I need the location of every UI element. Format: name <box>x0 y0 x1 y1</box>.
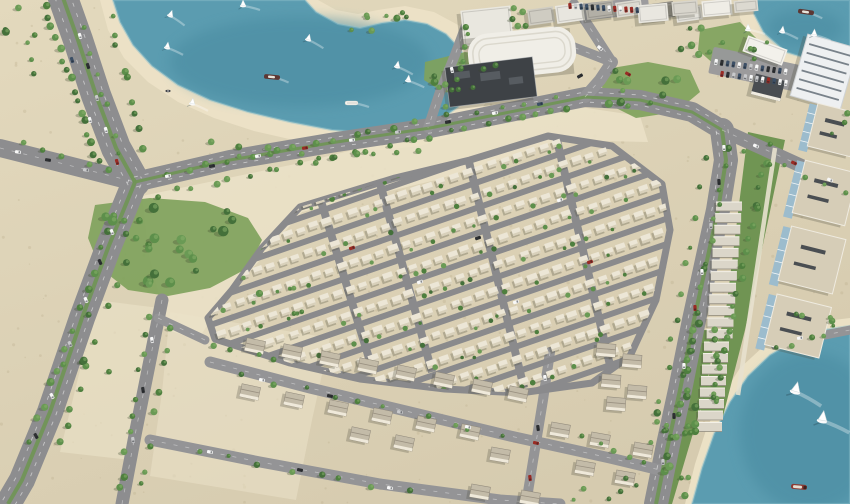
tree-highlight <box>132 100 135 103</box>
tree-highlight <box>802 313 805 316</box>
tree-highlight <box>125 69 128 72</box>
car-windshield <box>569 6 571 8</box>
tree-highlight <box>150 444 153 447</box>
tree-highlight <box>94 271 97 274</box>
car-windshield <box>723 149 725 151</box>
sand-speckle <box>715 109 718 112</box>
tree-highlight <box>713 217 715 219</box>
sand-speckle <box>518 274 521 277</box>
villa-tree-icon <box>306 283 311 288</box>
tree-highlight <box>107 102 109 104</box>
tree-highlight <box>158 390 161 393</box>
tree-highlight <box>666 453 669 456</box>
tree-highlight <box>42 148 44 150</box>
sand-speckle <box>663 346 666 349</box>
tree-highlight <box>93 152 96 155</box>
villa-tree-icon <box>514 159 519 164</box>
tree-highlight <box>68 423 71 426</box>
tree-highlight <box>273 382 276 385</box>
tree-highlight <box>464 126 467 129</box>
car <box>682 363 685 369</box>
tree-highlight <box>776 346 778 348</box>
villa-tree-icon <box>584 236 589 241</box>
tree-highlight <box>189 168 192 171</box>
tree-highlight <box>108 167 111 170</box>
tree-highlight <box>752 223 755 226</box>
villa-tree-icon <box>258 324 263 329</box>
villa-tree-icon <box>624 198 628 202</box>
tree-highlight <box>608 101 612 105</box>
tree-highlight <box>277 148 280 151</box>
tree-highlight <box>294 312 296 314</box>
tree-highlight <box>620 489 622 491</box>
villa-tree-icon <box>478 349 482 353</box>
sand-speckle <box>633 154 635 156</box>
villa-tree-icon <box>474 327 478 331</box>
tree-highlight <box>513 6 516 9</box>
sand-speckle <box>362 203 364 205</box>
tree-highlight <box>698 320 702 324</box>
tree-highlight <box>410 488 413 491</box>
stern <box>803 486 806 489</box>
villa-tree-icon <box>458 306 463 311</box>
car-windshield <box>662 463 664 465</box>
villa-tree-icon <box>494 215 499 220</box>
tree-highlight <box>46 3 49 6</box>
sand-speckle <box>316 319 319 322</box>
tree-highlight <box>695 421 699 425</box>
villa-tree-icon <box>377 334 382 339</box>
tree-highlight <box>393 126 396 129</box>
villa-tree-icon <box>357 313 361 317</box>
tree-highlight <box>84 26 86 28</box>
villa-tree-icon <box>574 192 579 197</box>
tree-highlight <box>716 353 719 356</box>
tree-highlight <box>770 142 772 144</box>
villa-tree-icon <box>589 209 594 214</box>
sand-speckle <box>31 25 33 27</box>
villa-tree-icon <box>479 250 483 254</box>
sand-speckle <box>29 263 30 264</box>
tree-highlight <box>670 337 672 339</box>
tree-highlight <box>685 261 688 264</box>
tree-highlight <box>50 379 54 383</box>
tree-highlight <box>824 183 826 185</box>
tree-highlight <box>31 58 33 60</box>
tree-highlight <box>55 35 58 38</box>
rowhouse-shadow <box>710 261 712 270</box>
villa-tree-icon <box>549 173 554 178</box>
villa-tree-icon <box>321 251 326 256</box>
tree-highlight <box>396 151 398 153</box>
tree-highlight <box>153 204 158 209</box>
tree-highlight <box>583 487 586 490</box>
tree-highlight <box>99 159 102 162</box>
tree-highlight <box>138 126 141 129</box>
tree-highlight <box>239 154 241 156</box>
sand-speckle <box>421 435 423 437</box>
rowhouse-unit <box>713 248 739 257</box>
tree-highlight <box>715 382 717 384</box>
tree-highlight <box>465 25 468 28</box>
car-windshield <box>591 8 593 10</box>
tree-highlight <box>301 310 303 312</box>
tree-highlight <box>366 13 369 16</box>
tree-highlight <box>315 161 318 164</box>
tree-highlight <box>158 195 161 198</box>
tree-highlight <box>134 111 137 114</box>
sand-speckle <box>525 406 527 408</box>
tree-highlight <box>136 236 139 239</box>
tree-highlight <box>117 283 120 286</box>
villa-tree-icon <box>588 160 592 164</box>
tree-highlight <box>135 398 137 400</box>
sand-speckle <box>840 291 843 294</box>
sand-speckle <box>645 125 648 128</box>
tree-highlight <box>613 449 616 452</box>
tree-highlight <box>338 476 340 478</box>
sand-speckle <box>81 458 82 459</box>
tree-highlight <box>517 24 520 27</box>
tree-highlight <box>724 348 727 351</box>
tree-highlight <box>72 329 75 332</box>
tree-highlight <box>227 177 230 180</box>
car-windshield <box>575 7 577 9</box>
villa-tree-icon <box>422 293 427 298</box>
tree-highlight <box>657 410 660 413</box>
sand-speckle <box>366 474 368 476</box>
tree-highlight <box>114 33 117 36</box>
tree-highlight <box>179 246 183 250</box>
sand-speckle <box>499 332 502 335</box>
tree-highlight <box>582 434 584 436</box>
tree-highlight <box>153 409 156 412</box>
tree-highlight <box>66 68 69 71</box>
tree-highlight <box>701 25 704 28</box>
rowhouse-unit <box>708 318 734 327</box>
villa-tree-icon <box>419 322 422 325</box>
tree-highlight <box>115 134 117 136</box>
tree-highlight <box>390 144 393 147</box>
villa-tree-icon <box>502 289 507 294</box>
tree-highlight <box>192 255 196 259</box>
tree-highlight <box>139 218 142 221</box>
tree-highlight <box>149 315 152 318</box>
sand-speckle <box>24 357 26 359</box>
tree-highlight <box>396 16 399 19</box>
tree-highlight <box>687 367 690 370</box>
car <box>607 5 611 11</box>
villa-tree-icon <box>370 260 374 264</box>
car <box>661 459 664 465</box>
tree-highlight <box>699 185 701 187</box>
villa-tree-icon <box>538 175 542 179</box>
tree-highlight <box>89 162 92 165</box>
sand-speckle <box>209 153 211 155</box>
villa-tree-icon <box>364 338 369 343</box>
sand-speckle <box>790 139 793 142</box>
sand-speckle <box>671 281 674 284</box>
tree-highlight <box>719 365 722 368</box>
tree-highlight <box>164 361 167 364</box>
tree-highlight <box>445 105 448 108</box>
tree-highlight <box>713 392 715 394</box>
car <box>590 4 594 10</box>
villa-tree-icon <box>351 341 356 346</box>
sand-speckle <box>7 370 10 373</box>
tree-highlight <box>141 482 143 484</box>
tree-highlight <box>61 46 64 49</box>
sand-speckle <box>321 501 324 504</box>
tree-highlight <box>535 112 538 115</box>
tree-highlight <box>127 74 130 77</box>
tree-highlight <box>90 139 94 143</box>
villa-tree-icon <box>287 317 291 321</box>
tree-highlight <box>88 312 91 315</box>
villa-tree-icon <box>611 228 615 232</box>
tree-highlight <box>318 156 320 158</box>
tree-highlight <box>83 358 86 361</box>
sand-speckle <box>43 298 44 299</box>
tree-highlight <box>144 352 147 355</box>
tree-highlight <box>502 106 504 108</box>
tree-highlight <box>44 405 47 408</box>
tree-highlight <box>429 136 432 139</box>
tree-highlight <box>124 474 127 477</box>
villa-tree-icon <box>513 185 517 189</box>
tree-highlight <box>190 187 192 189</box>
sand-speckle <box>576 390 578 392</box>
tree-highlight <box>148 246 151 249</box>
tree-highlight <box>767 41 769 43</box>
tree-highlight <box>80 387 83 390</box>
tree-highlight <box>322 472 325 475</box>
tree-highlight <box>253 155 256 158</box>
rowhouse-shadow <box>702 343 704 352</box>
sand-speckle <box>481 435 483 437</box>
tree-highlight <box>434 74 437 77</box>
commercial-building <box>667 0 698 19</box>
car-windshield <box>580 7 582 9</box>
villa-tree-icon <box>606 281 610 285</box>
car-windshield <box>673 417 675 419</box>
villa-tree-icon <box>495 314 498 317</box>
villa-tree-icon <box>623 273 627 277</box>
villa-tree-icon <box>548 150 552 154</box>
villa-tree-icon <box>468 277 473 282</box>
sand-speckle <box>347 502 349 504</box>
tree-highlight <box>716 396 719 399</box>
tree-highlight <box>36 415 39 418</box>
tree-highlight <box>113 14 115 16</box>
tree-highlight <box>351 28 353 30</box>
villa-tree-icon <box>403 326 408 331</box>
tree-highlight <box>714 327 717 330</box>
tree-highlight <box>18 5 21 8</box>
tree-highlight <box>170 326 173 329</box>
tree-highlight <box>847 111 850 114</box>
tree-highlight <box>742 264 745 267</box>
tree-highlight <box>650 441 652 443</box>
sand-speckle <box>450 275 453 278</box>
sand-speckle <box>324 487 326 489</box>
car-windshield <box>529 478 531 480</box>
villa-tree-icon <box>598 332 603 337</box>
villa-tree-icon <box>624 175 628 179</box>
villa-tree-icon <box>565 293 570 298</box>
tree-highlight <box>690 246 692 248</box>
tree-highlight <box>301 152 304 155</box>
tree-highlight <box>5 29 9 33</box>
tree-highlight <box>684 493 687 496</box>
villa-tree-icon <box>595 338 600 343</box>
villa-tree-icon <box>491 246 496 251</box>
tree-highlight <box>722 41 724 43</box>
rowhouse-shadow <box>699 378 701 387</box>
villa-tree-icon <box>606 302 610 306</box>
rowhouse-shadow <box>698 389 700 398</box>
villa-tree-icon <box>570 242 575 247</box>
tree-highlight <box>704 266 707 269</box>
commercial-building <box>697 0 733 21</box>
car-windshield <box>608 9 610 11</box>
villa-tree-icon <box>550 375 555 380</box>
sand-speckle <box>689 221 691 223</box>
commercial-building <box>730 0 759 16</box>
sand-speckle <box>133 492 136 495</box>
tree-highlight <box>27 41 29 43</box>
tree-highlight <box>357 399 360 402</box>
sand-speckle <box>41 314 44 317</box>
villa-tree-icon <box>421 268 426 273</box>
tree-highlight <box>832 132 834 134</box>
tree-highlight <box>457 77 459 79</box>
villa-tree-icon <box>454 204 459 209</box>
car-windshield <box>142 390 144 392</box>
tree-highlight <box>664 429 666 431</box>
sand-speckle <box>243 501 246 504</box>
car <box>624 6 628 12</box>
sand-speckle <box>418 401 420 403</box>
rowhouse-shadow <box>701 355 703 364</box>
sand-speckle <box>593 67 596 70</box>
tree-highlight <box>476 111 478 113</box>
villa-tree-icon <box>472 224 475 227</box>
tree-highlight <box>217 182 220 185</box>
tree-highlight <box>177 186 180 189</box>
tree-highlight <box>181 236 185 240</box>
tree-highlight <box>370 485 373 488</box>
tree-highlight <box>687 388 690 391</box>
tree-highlight <box>269 167 271 169</box>
tree-highlight <box>115 43 118 46</box>
sand-speckle <box>845 282 848 285</box>
tree-highlight <box>149 281 152 284</box>
sand-speckle <box>45 295 47 297</box>
sand-speckle <box>247 138 249 140</box>
tree-highlight <box>77 99 79 101</box>
villa-tree-icon <box>341 321 346 326</box>
tree-highlight <box>188 251 192 255</box>
tree-highlight <box>227 160 229 162</box>
tree-highlight <box>105 213 109 217</box>
tree-highlight <box>222 227 227 232</box>
villa-tree-icon <box>408 347 412 351</box>
villa-tree-icon <box>561 193 566 198</box>
tree-highlight <box>629 455 631 457</box>
sand-speckle <box>417 432 420 435</box>
tree-highlight <box>627 78 631 82</box>
rowhouse-shadow <box>706 307 708 316</box>
sand-speckle <box>146 424 148 426</box>
tree-highlight <box>213 227 216 230</box>
car <box>717 179 721 185</box>
tree-highlight <box>232 217 236 221</box>
tree-highlight <box>619 77 622 80</box>
tree-highlight <box>230 348 232 350</box>
tree-highlight <box>268 145 271 148</box>
tree-highlight <box>695 404 699 408</box>
villa-tree-icon <box>535 280 539 284</box>
tree-highlight <box>373 152 375 154</box>
tree-highlight <box>333 139 336 142</box>
tree-highlight <box>451 128 453 130</box>
villa-tree-icon <box>606 254 609 257</box>
tree-highlight <box>460 66 463 69</box>
car <box>635 7 639 13</box>
sand-speckle <box>57 320 59 322</box>
commercial-building <box>633 3 669 27</box>
tree-highlight <box>250 175 252 177</box>
tree-highlight <box>748 237 751 240</box>
rowhouse-unit <box>698 411 723 420</box>
rowhouse-shadow <box>705 331 707 340</box>
sand-speckle <box>142 119 144 121</box>
sand-speckle <box>508 176 510 178</box>
villa-tree-icon <box>220 308 225 313</box>
tree-highlight <box>844 120 846 122</box>
car-windshield <box>636 11 638 13</box>
tree-highlight <box>754 57 756 59</box>
rowhouse-unit <box>697 423 722 432</box>
water-depth-shade <box>170 17 430 107</box>
tree-highlight <box>512 17 515 20</box>
tree-highlight <box>556 96 558 98</box>
tree-highlight <box>402 11 404 13</box>
tree-highlight <box>64 347 67 350</box>
car <box>602 5 606 11</box>
villa-tree-icon <box>473 356 477 360</box>
tree-highlight <box>434 79 437 82</box>
tree-highlight <box>684 431 687 434</box>
villa-tree-icon <box>388 230 393 235</box>
tree-highlight <box>677 318 680 321</box>
villa-tree-icon <box>489 318 494 323</box>
car <box>722 145 726 151</box>
tree-highlight <box>508 116 511 119</box>
tree-highlight <box>686 394 689 397</box>
villa-tree-icon <box>460 281 464 285</box>
tree-highlight <box>488 122 491 125</box>
villa-tree-icon <box>431 239 436 244</box>
tree-highlight <box>695 428 699 432</box>
tree-highlight <box>108 303 111 306</box>
car-windshield <box>625 10 627 12</box>
tree-highlight <box>138 368 140 370</box>
tree-highlight <box>522 114 525 117</box>
tree-highlight <box>455 423 457 425</box>
sand-speckle <box>311 269 312 270</box>
